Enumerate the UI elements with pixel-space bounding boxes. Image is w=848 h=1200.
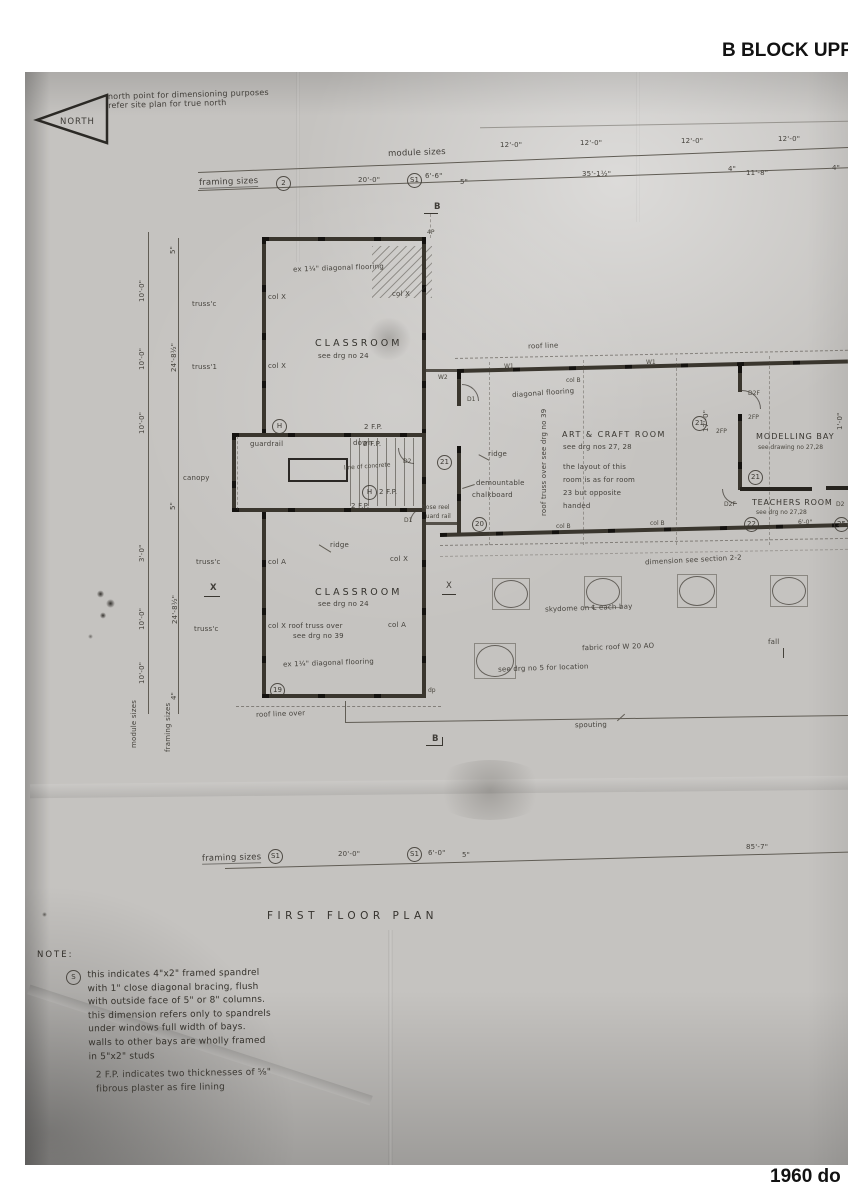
left-dim: 24'-8½" [170,343,178,372]
room-ref: see drg no 27,28 [756,509,807,516]
framing-dim: 5" [462,851,470,859]
scanned-drawing-page: B BLOCK UPPER 1960 do NORTH north point … [0,0,848,1200]
truss-note: see drg no 39 [293,632,344,640]
note-paragraph: this indicates 4"x2" framed spandrel wit… [87,967,271,1065]
wall [826,486,848,490]
section-tick [426,745,442,746]
room-ref: see drg no 24 [318,600,369,608]
truss-label: truss'1 [192,363,217,371]
module-dim: 12'-0" [681,137,703,145]
plan-title: FIRST FLOOR PLAN [267,910,438,922]
skydome-circle [679,576,715,606]
wall [738,366,742,392]
wall [262,237,266,437]
dim-label: 6'-0" [798,519,812,526]
section-tick [204,596,220,597]
column-label: col X [268,293,286,301]
hose-reel-label: hose reel [422,504,450,511]
framing-dim: 85'-7" [746,843,768,851]
roof-line-label: roof line [528,341,559,350]
ink-smudge [97,590,104,598]
wall [457,372,461,406]
framing-dim: 20'-0" [358,176,380,184]
dim-label: 1'-0" [836,412,844,430]
room-name: ART & CRAFT ROOM [562,430,666,439]
module-dim: 12'-0" [500,141,522,149]
wall [232,433,426,437]
ink-smudge [88,634,93,639]
ink-smudge [100,612,106,619]
canopy-label: canopy [183,474,210,482]
framing-line-label: framing sizes [199,176,259,189]
fp-label: 2 F.P. [363,440,381,448]
wall [738,414,742,490]
window-wall [426,369,458,372]
window-label: W2 [438,374,448,381]
section-marker-b-bottom: B [432,734,439,744]
dim-label: 17'-0" [702,410,710,432]
framing-dim: 6'-0" [428,849,446,857]
left-dim: 5" [169,246,177,254]
room-name: CLASSROOM [315,587,402,598]
section-tick [442,594,456,595]
column-label: col X [268,362,286,370]
ink-smudge [106,599,115,608]
column-label: col X [390,555,408,563]
guardrail-label: guardrail [250,440,283,448]
room-note: the layout of this room is as for room 2… [563,461,635,513]
left-dim: 10'-0" [138,348,146,370]
room-ref: see drawing no 27,28 [758,444,823,451]
truss-label: truss'c [196,558,221,566]
note-heading: NOTE: [37,950,73,960]
left-dim: 10'-0" [138,412,146,434]
room-number-badge: 21 [437,455,452,470]
left-dim: 10'-0" [138,280,146,302]
room-ref: see drg nos 27, 28 [563,443,632,451]
header-title: B BLOCK UPPER [722,40,848,62]
framing-dim: 6'-6" [425,172,443,180]
wall-tag: dp [428,687,436,694]
skydome [492,578,530,610]
room-number-badge: 19 [270,683,285,698]
framing-dim: 4" [832,164,840,172]
framing-dim: 11'-8" [746,169,768,177]
north-arrow: NORTH [33,92,111,146]
framing-s1-badge: S1 [407,847,422,862]
wall [422,512,426,698]
fp-label: 2 F.P. [351,502,369,510]
room-name: MODELLING BAY [756,432,835,441]
stair-landing [288,458,348,482]
skydome-circle [586,578,620,606]
grid-line [676,358,677,545]
left-dim: 10'-0" [138,662,146,684]
skydome [474,643,516,679]
grid-line [583,360,584,545]
column-label: col X [392,290,410,298]
left-module-line-label: module sizes [130,700,138,748]
left-framing-line [178,238,179,714]
module-line-label: module sizes [388,147,446,159]
column-label: col A [388,621,406,629]
room-name: TEACHERS ROOM [752,498,833,507]
fp-label: 2 F.P. [364,423,382,431]
wall [740,487,812,491]
room-ref: see drg no 24 [318,352,369,360]
paper-stain [430,760,550,820]
framing-dim: 4" [728,165,736,173]
module-dim: 12'-0" [778,135,800,143]
framing-s1-badge: S1 [407,173,422,188]
canopy-outline [237,436,238,510]
truss-label: truss'c [192,300,217,308]
door-label: D2 [403,458,411,465]
door-label: D1 [404,517,412,524]
room-number-badge: 20 [472,517,487,532]
marker-badge: H [272,419,287,434]
door-label: D2F [724,501,736,508]
spouting-label: spouting [575,721,607,730]
hose-reel-label: guard rail [422,513,451,520]
fall-arrow [783,648,784,658]
column-label: col B [566,377,581,384]
door-label: D1 [467,396,475,403]
wall-tag: 4P [427,229,434,236]
column-label: col A [268,558,286,566]
framing-dim: 5" [460,178,468,186]
fp-label: 2FP [716,428,727,435]
window-wall [426,522,458,525]
ridge-label: ridge [330,541,349,549]
left-module-line [148,232,149,714]
section-marker-x-right: X [446,581,452,591]
column-label: col B [556,523,571,530]
north-arrow-label: NORTH [60,117,95,127]
roof-line-over-dash [236,706,441,707]
roof-line-over-label: roof line over [256,709,305,719]
note-ref-badge: S [66,970,81,985]
door-label: D2 [836,501,844,508]
room-number-badge: 21 [748,470,763,485]
door-label: D2F [748,390,760,397]
wall [457,446,461,534]
ridge-label: ridge [488,450,507,458]
section-tick [442,737,443,746]
section-tick [424,213,438,214]
marker-badge: H [362,485,377,500]
left-dim: 4" [170,692,178,700]
framing-ref-badge: 2 [276,176,291,191]
wall [262,512,266,698]
framing-dim: 35'-1½" [582,170,611,178]
room-number-badge: 22 [744,517,759,532]
verandah-line [345,701,346,722]
wall [232,433,236,512]
left-dim: 5" [169,502,177,510]
ink-smudge [42,912,47,917]
skydome-circle [772,577,806,605]
bottom-framing-label: framing sizes [202,852,262,865]
framing-dim: 20'-0" [338,850,360,858]
truss-note-vertical: roof truss over see drg no 39 [540,409,548,516]
room-number-badge: 25 [834,517,848,532]
column-label: col B [650,520,665,527]
framing-s1-badge: S1 [268,849,283,864]
footer-caption: 1960 do [770,1166,841,1188]
truss-note: col X roof truss over [268,622,343,630]
note-paragraph: 2 F.P. indicates two thicknesses of ⅝" f… [96,1066,272,1096]
chalkboard-label: demountable [476,479,525,487]
room-name: CLASSROOM [315,338,402,349]
truss-label: truss'c [194,625,219,633]
skydome [677,574,717,608]
section-marker-x-left: X [210,583,217,593]
wall [262,237,426,241]
left-framing-line-label: framing sizes [164,703,172,752]
left-dim: 10'-0" [138,608,146,630]
skydome [770,575,808,607]
left-dim: 24'-8½" [171,595,179,624]
fall-label: fall [768,638,779,646]
section-marker-b-top: B [434,202,441,212]
skydome-circle [494,580,528,608]
wall [262,694,426,698]
left-dim: 3'-0" [138,544,146,562]
module-dim: 12'-0" [580,139,602,147]
chalkboard-label: chalkboard [472,491,513,499]
fp-label: 2FP [748,414,759,421]
fp-label: 2 F.P. [379,488,397,496]
